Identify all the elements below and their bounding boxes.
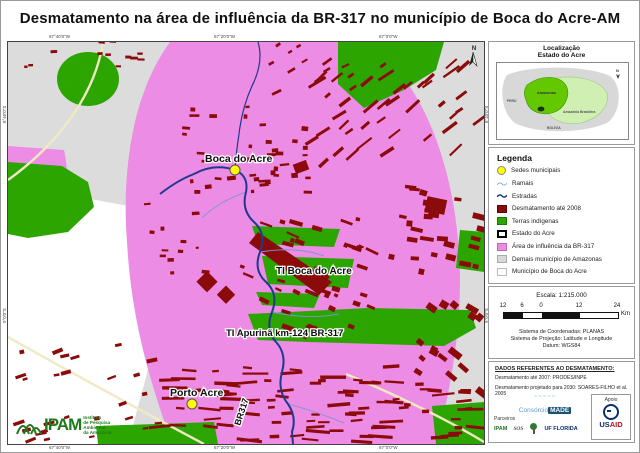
map-sheet: Desmatamento na área de influência da BR… <box>0 0 640 453</box>
partner-ipam-logo: IPAM <box>494 426 507 432</box>
scale-unit: Km <box>621 311 630 317</box>
credits-logos: ~~~~~ ConsórcioMADE Parceiros IPAM SOS U… <box>492 394 631 440</box>
ipam-name-line: da Amazônia <box>83 430 111 435</box>
coord-top-1: 67°40'0"W <box>49 34 70 39</box>
legend-item-estradas: Estradas <box>497 192 634 200</box>
coord-left-2: 9°0'0"S <box>2 308 7 323</box>
coord-bottom-2: 67°20'0"W <box>214 445 235 450</box>
scale-bar-segments <box>503 312 619 319</box>
legend-label: Ramais <box>512 180 533 187</box>
crs-line: Sistema de Coordenadas: PLANAS <box>519 329 604 335</box>
usaid-seal-icon <box>603 404 619 420</box>
locator-label-amazonia: Amazônia Brasileira <box>563 110 596 114</box>
indigenous-land <box>57 52 119 106</box>
locator-box: Localização Estado do Acre PERU Amazonas… <box>488 41 635 145</box>
legend-swatch-black-outline <box>497 230 507 238</box>
usaid-us: US <box>599 420 609 429</box>
seat-dot-porto-acre <box>187 399 197 409</box>
usaid-aid: AID <box>610 420 623 429</box>
crs-line: Datum: WGS84 <box>543 343 581 349</box>
label-porto-acre: Porto Acre <box>170 387 223 399</box>
legend-swatch-green <box>497 217 507 225</box>
locator-north-label: N <box>616 68 619 73</box>
scale-tick: 0 <box>539 303 542 309</box>
partner-uf-logo: UF FLORIDA <box>544 426 577 432</box>
label-ti-boca-do-acre: TI Boca do Acre <box>276 266 352 277</box>
locator-label-amazonas: Amazonas <box>537 91 556 95</box>
scale-tick: 12 <box>500 303 507 309</box>
legend-label: Município de Boca do Acre <box>512 268 587 275</box>
legend-label: Estado do Acre <box>512 230 555 237</box>
scale-box: Escala: 1:215.000 12 6 0 12 24 Km Sistem… <box>488 286 635 359</box>
legend-label: Estradas <box>512 193 537 200</box>
crs-line: Sistema de Projeção: Latitude e Longitud… <box>511 336 613 342</box>
apoio-cell: Apoio USAID <box>591 394 631 440</box>
partner-sos-logo: SOS <box>513 426 523 432</box>
scale-tick: 24 <box>614 303 621 309</box>
locator-title: Localização Estado do Acre <box>489 45 634 59</box>
legend-swatch-thick-line <box>497 192 507 200</box>
legend-swatch-red <box>497 205 507 213</box>
crs-info: Sistema de Coordenadas: PLANAS Sistema d… <box>489 329 634 350</box>
scale-tick: 12 <box>576 303 583 309</box>
usaid-wordmark: USAID <box>592 420 630 429</box>
legend-label: Sedes municipais <box>511 167 560 174</box>
coord-left-1: 8°40'0"S <box>2 106 7 123</box>
legend-item-area-influencia: Área de influência da BR-317 <box>497 243 634 251</box>
locator-label-bolivia: BOLÍVIA <box>547 125 561 130</box>
ipam-acronym: IPAM <box>44 418 81 432</box>
label-ti-apurina: TI Apurinã km-124 BR-317 <box>226 328 343 339</box>
partner-tree-icon <box>529 423 538 434</box>
legend-swatch-pink <box>497 243 507 251</box>
north-arrow-icon <box>468 52 478 68</box>
main-map: Boca do Acre TI Boca do Acre TI Apurinã … <box>7 41 485 445</box>
seat-dot-boca-do-acre <box>230 165 240 175</box>
data-sources-header: DADOS REFERENTES AO DESMATAMENTO: <box>495 366 634 372</box>
ipam-name: Instituto de Pesquisa Ambiental da Amazô… <box>83 415 111 435</box>
data-source-line: Desmatamento até 2007: PRODES/INPE <box>495 375 634 381</box>
locator-label-peru: PERU <box>507 99 517 103</box>
apoio-label: Apoio <box>592 397 630 403</box>
scale-tick: 6 <box>520 303 523 309</box>
scale-bar: 12 6 0 12 24 Km <box>503 303 623 325</box>
coord-top-3: 67°0'0"W <box>379 34 398 39</box>
consorcio-prefix: Consórcio <box>519 407 548 414</box>
legend-label: Desmatamento até 2008 <box>512 205 581 212</box>
coord-top-2: 67°20'0"W <box>214 34 235 39</box>
north-arrow: N <box>468 46 480 70</box>
coord-bottom-3: 67°0'0"W <box>379 445 398 450</box>
legend-swatch-gray <box>497 255 507 263</box>
legend-item-municipio-boca: Município de Boca do Acre <box>497 268 634 276</box>
page-title: Desmatamento na área de influência da BR… <box>1 1 639 35</box>
legend-label: Terras indígenas <box>512 218 559 225</box>
scale-title: Escala: 1:215.000 <box>489 292 634 299</box>
locator-title-line2: Estado do Acre <box>538 52 585 59</box>
legend-item-desmatamento: Desmatamento até 2008 <box>497 205 634 213</box>
map-canvas: Boca do Acre TI Boca do Acre TI Apurinã … <box>8 42 484 444</box>
legend-box: Legenda Sedes municipais Ramais Estradas… <box>488 147 635 284</box>
locator-title-line1: Localização <box>543 45 580 52</box>
label-boca-do-acre: Boca do Acre <box>205 153 272 165</box>
legend-item-estado-acre: Estado do Acre <box>497 230 634 238</box>
consorcio-suffix: MADE <box>548 407 571 414</box>
legend-swatch-yellow-circle <box>497 166 506 175</box>
legend-label: Área de influência da BR-317 <box>512 243 594 250</box>
legend-swatch-thin-line <box>497 180 507 188</box>
legend-item-sedes: Sedes municipais <box>497 166 634 175</box>
locator-map-canvas: PERU Amazonas Amazônia Brasileira BOLÍVI… <box>497 63 626 137</box>
consorcio-made-logo: ~~~~~ ConsórcioMADE <box>510 395 580 417</box>
locator-boca-do-acre-spot <box>538 107 545 112</box>
consorcio-wave-icon: ~~~~~ <box>510 395 580 399</box>
coord-bottom-1: 67°40'0"W <box>49 445 70 450</box>
locator-map: PERU Amazonas Amazônia Brasileira BOLÍVI… <box>496 62 629 140</box>
legend-title: Legenda <box>497 153 634 163</box>
legend-label: Demais município de Amazonas <box>512 256 602 263</box>
parceiros-label: Parceiros <box>494 416 515 422</box>
data-sources-box: DADOS REFERENTES AO DESMATAMENTO: Desmat… <box>488 361 635 443</box>
partner-logos-row: IPAM SOS UF FLORIDA <box>494 423 578 434</box>
legend-item-terras-indigenas: Terras indígenas <box>497 217 634 225</box>
legend-item-ramais: Ramais <box>497 180 634 188</box>
ipam-logo-icon <box>16 414 42 436</box>
legend-item-demais-municipios: Demais município de Amazonas <box>497 255 634 263</box>
legend-swatch-white <box>497 268 507 276</box>
ipam-logo: IPAM Instituto de Pesquisa Ambiental da … <box>16 414 111 436</box>
